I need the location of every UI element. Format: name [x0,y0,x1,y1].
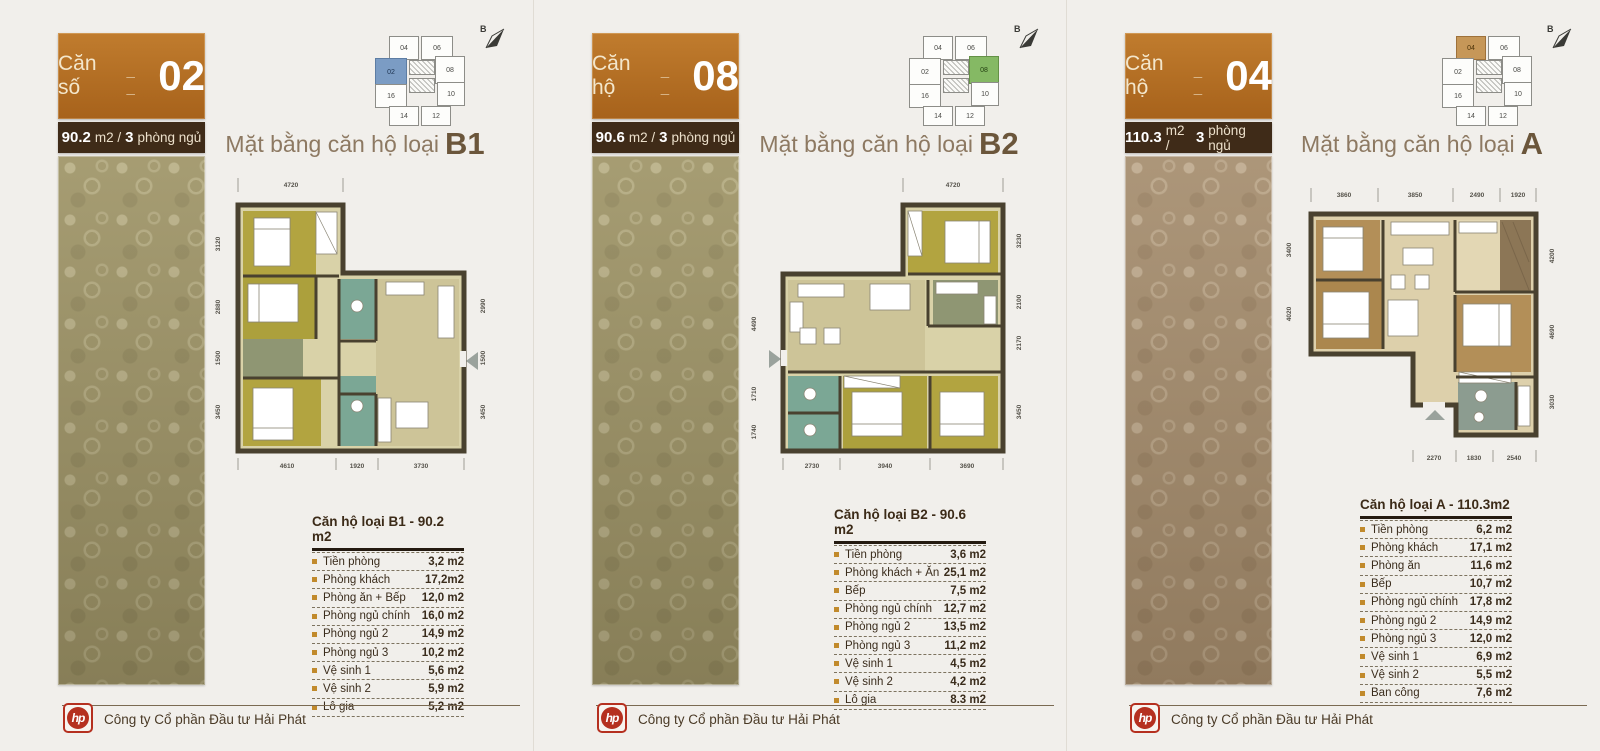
dim-label: 2100 [1016,294,1023,309]
room-area-value: 3,6 m2 [950,549,986,561]
area-bar: 90.2 m2 / 3 phòng ngủ [58,122,205,153]
area-value: 110.3 [1125,129,1162,146]
bedroom-count: 3 [125,129,133,146]
plan-type: A [1521,126,1543,161]
brochure-page: Căn số _ _ 02 90.2 m2 / 3 phòng ngủ 04 0… [0,0,1600,751]
table-row: Phòng khách17,2m2 [312,571,464,589]
dim-label: 3450 [480,404,487,419]
room-area-value: 14,9 m2 [1470,615,1512,627]
table-row: Lô gia8.3 m2 [834,692,986,710]
dim-label: 4720 [284,182,299,189]
table-title: Căn hộ loại B1 - 90.2 m2 [312,514,464,551]
area-unit: m2 / [1166,123,1192,153]
dim-label: 2170 [1016,335,1023,350]
table-row: Tiền phòng3,6 m2 [834,546,986,564]
compass-arrow-icon [484,26,506,50]
table-row: Phòng ngủ chính16,0 m2 [312,608,464,626]
room-area-value: 17,2m2 [425,574,464,586]
unit-number: 04 [1225,55,1272,97]
bullet-square-icon [834,643,839,648]
room-area-value: 6,2 m2 [1476,524,1512,536]
room-name: Vệ sinh 2 [845,676,950,688]
key-unit-16: 16 [1442,84,1474,108]
bullet-square-icon [312,614,317,619]
bedroom-label: phòng ngủ [137,130,201,145]
room-area-value: 12,7 m2 [944,603,986,615]
room-name: Phòng ngủ chính [845,603,944,615]
key-unit-14: 14 [1456,106,1486,126]
company-name: Công ty Cổ phần Đầu tư Hải Phát [638,712,840,727]
room-area-value: 7,6 m2 [1476,687,1512,699]
key-unit-10: 10 [437,82,465,106]
bullet-square-icon [1360,636,1365,641]
dim-label: 3860 [1337,192,1352,199]
room-name: Tiền phòng [845,549,950,561]
key-unit-12: 12 [955,106,985,126]
bedroom-label: phòng ngủ [671,130,735,145]
room-area-value: 3,2 m2 [428,556,464,568]
table-rows: Tiền phòng3,6 m2Phòng khách + Ăn25,1 m2B… [834,545,986,710]
unit-number-header: Căn hộ _ _ 08 [592,33,739,119]
unit-panel-b2: Căn hộ _ _ 08 90.6 m2 / 3 phòng ngủ 04 0… [533,0,1067,751]
dim-label: 1740 [751,424,758,439]
room-name: Vệ sinh 1 [845,658,950,670]
room-area-value: 13,5 m2 [944,621,986,633]
company-logo: hp [1130,703,1160,733]
entry-door-gap [781,350,787,366]
bedroom-count: 3 [659,129,667,146]
room-name: Phòng khách + Ăn [845,567,944,579]
room-name: Bếp [845,585,950,597]
bullet-square-icon [312,632,317,637]
entry-door-gap [1423,402,1445,408]
bullet-square-icon [312,595,317,600]
area-value: 90.6 [596,129,625,146]
room-area-table: Căn hộ loại B1 - 90.2 m2 Tiền phòng3,2 m… [312,514,464,717]
room-area-value: 17,1 m2 [1470,542,1512,554]
room-area-value: 5,9 m2 [428,683,464,695]
room-name: Phòng ngủ chính [323,610,422,622]
bullet-square-icon [1360,545,1365,550]
entry-arrow-icon [769,350,781,368]
unit-blanks: _ _ [1194,63,1219,97]
dim-label: 3030 [1549,394,1556,409]
room-name: Phòng ngủ 3 [323,647,422,659]
key-unit-02: 02 [909,58,941,86]
key-unit-04-highlight: 04 [1456,36,1486,60]
bullet-square-icon [834,552,839,557]
dim-label: 4720 [946,182,961,189]
room-area-value: 4,2 m2 [950,676,986,688]
room-area-value: 11,6 m2 [1470,560,1512,572]
key-unit-04: 04 [389,36,419,60]
key-unit-16: 16 [375,84,407,108]
bullet-square-icon [1360,600,1365,605]
north-compass: B [1549,24,1575,54]
dim-label: 4690 [1549,324,1556,339]
table-row: Phòng ngủ 310,2 m2 [312,644,464,662]
table-row: Bếp10,7 m2 [1360,576,1512,594]
dim-label: 4020 [1286,306,1293,321]
table-row: Phòng khách17,1 m2 [1360,539,1512,557]
key-stair-core [1476,78,1502,93]
key-unit-16: 16 [909,84,941,108]
key-unit-04: 04 [923,36,953,60]
dim-label: 2490 [1470,192,1485,199]
table-row: Tiền phòng3,2 m2 [312,553,464,571]
floor-plan-b2: 4720 4490 1710 1740 3230 2100 2170 3450 … [740,166,1032,478]
room-name: Tiền phòng [1371,524,1476,536]
dim-label: 2730 [805,463,820,470]
bullet-square-icon [834,698,839,703]
unit-number-header: Căn số _ _ 02 [58,33,205,119]
room-name: Phòng khách [1371,542,1470,554]
key-elevator-core [409,60,435,75]
floor-key-plan: 04 06 02 08 16 10 14 12 [357,26,479,124]
plan-title: Mặt bằng căn hộ loạiB1 [205,126,505,162]
table-row: Phòng ăn11,6 m2 [1360,557,1512,575]
table-row: Phòng ngủ 311,2 m2 [834,637,986,655]
room-area-value: 16,0 m2 [422,610,464,622]
dim-label: 1830 [1467,455,1482,462]
dim-label: 1710 [751,386,758,401]
table-rows: Tiền phòng6,2 m2Phòng khách17,1 m2Phòng … [1360,520,1512,703]
plan-title-prefix: Mặt bằng căn hộ loại [225,131,439,157]
dim-label: 4490 [751,316,758,331]
plan-title: Mặt bằng căn hộ loạiA [1272,126,1572,162]
room-area-value: 10,2 m2 [422,647,464,659]
key-unit-02-highlight: 02 [375,58,407,86]
room-name: Vệ sinh 1 [1371,651,1476,663]
logo-hp-icon: hp [601,707,623,729]
unit-blanks: _ _ [126,63,151,97]
room-area-value: 14,9 m2 [422,628,464,640]
entry-arrow-icon [466,352,478,370]
key-unit-12: 12 [421,106,451,126]
bullet-square-icon [1360,654,1365,659]
key-unit-10: 10 [1504,82,1532,106]
plan-title: Mặt bằng căn hộ loạiB2 [739,126,1039,162]
dim-label: 1920 [350,463,365,470]
room-area-value: 12,0 m2 [1470,633,1512,645]
unit-panel-a: Căn hộ _ _ 04 110.3 m2 / 3 phòng ngủ 04 … [1066,0,1600,751]
table-row: Bếp7,5 m2 [834,582,986,600]
dim-label: 1500 [480,350,487,365]
dim-label: 4200 [1549,248,1556,263]
room-area-value: 12,0 m2 [422,592,464,604]
room-area-value: 17,8 m2 [1470,596,1512,608]
table-row: Vệ sinh 24,2 m2 [834,673,986,691]
unit-label: Căn hộ [1125,52,1187,100]
room-name: Vệ sinh 2 [1371,669,1476,681]
room-area-table: Căn hộ loại B2 - 90.6 m2 Tiền phòng3,6 m… [834,507,986,710]
room-area-table: Căn hộ loại A - 110.3m2 Tiền phòng6,2 m2… [1360,497,1512,703]
dim-label: 4610 [280,463,295,470]
company-name: Công ty Cổ phần Đầu tư Hải Phát [104,712,306,727]
area-unit: m2 / [629,130,655,145]
room-name: Phòng ăn [1371,560,1470,572]
room-name: Phòng ngủ chính [1371,596,1470,608]
room-name: Phòng ăn + Bếp [323,592,422,604]
room-name: Phòng khách [323,574,425,586]
room-area-value: 5,5 m2 [1476,669,1512,681]
dim-label: 2880 [215,299,222,314]
key-elevator-core [1476,60,1502,75]
bullet-square-icon [1360,527,1365,532]
dim-label: 3450 [215,404,222,419]
dim-label: 1920 [1511,192,1526,199]
dim-label: 2990 [480,298,487,313]
unit-label: Căn số [58,52,119,100]
room-name: Phòng ngủ 3 [845,640,944,652]
table-row: Phòng ngủ chính17,8 m2 [1360,594,1512,612]
decorative-pattern-strip [592,156,739,685]
footer-divider [62,705,520,706]
bullet-square-icon [834,625,839,630]
table-row: Lô gia5,2 m2 [312,699,464,717]
table-row: Tiền phòng6,2 m2 [1360,521,1512,539]
plan-title-prefix: Mặt bằng căn hộ loại [1301,131,1515,157]
room-area-value: 25,1 m2 [944,567,986,579]
dim-label: 3400 [1286,242,1293,257]
room-name: Lô gia [323,701,428,713]
key-unit-02: 02 [1442,58,1474,86]
room-name: Phòng ngủ 2 [845,621,944,633]
north-compass: B [482,24,508,54]
table-row: Phòng ngủ 312,0 m2 [1360,630,1512,648]
bullet-square-icon [834,679,839,684]
dim-label: 2540 [1507,455,1522,462]
table-row: Phòng ăn + Bếp12,0 m2 [312,589,464,607]
company-logo: hp [597,703,627,733]
company-name: Công ty Cổ phần Đầu tư Hải Phát [1171,712,1373,727]
table-row: Phòng khách + Ăn25,1 m2 [834,564,986,582]
table-row: Vệ sinh 16,9 m2 [1360,648,1512,666]
room-name: Phòng ngủ 2 [1371,615,1470,627]
key-unit-08: 08 [435,56,465,84]
dim-label: 3450 [1016,404,1023,419]
table-row: Phòng ngủ 214,9 m2 [312,626,464,644]
key-stair-core [943,78,969,93]
room-area-value: 10,7 m2 [1470,578,1512,590]
decorative-pattern-strip [58,156,205,685]
table-row: Phòng ngủ 214,9 m2 [1360,612,1512,630]
decorative-pattern-strip [1125,156,1272,685]
table-row: Vệ sinh 15,6 m2 [312,662,464,680]
key-unit-14: 14 [389,106,419,126]
bullet-square-icon [834,570,839,575]
room-name: Vệ sinh 1 [323,665,428,677]
room-area-value: 6,9 m2 [1476,651,1512,663]
bullet-square-icon [1360,582,1365,587]
logo-hp-icon: hp [67,707,89,729]
bullet-square-icon [1360,618,1365,623]
table-row: Ban công7,6 m2 [1360,685,1512,703]
table-rows: Tiền phòng3,2 m2Phòng khách17,2m2Phòng ă… [312,552,464,717]
floor-plan-b1: 4720 3120 2880 1500 3450 2990 1500 3450 … [206,166,498,478]
logo-hp-icon: hp [1134,707,1156,729]
dim-label: 3850 [1408,192,1423,199]
key-unit-14: 14 [923,106,953,126]
key-unit-10: 10 [971,82,999,106]
bedroom-count: 3 [1196,129,1204,146]
room-area-value: 4,5 m2 [950,658,986,670]
bullet-square-icon [312,668,317,673]
entry-arrow-icon [1425,410,1445,420]
floor-key-plan: 04 06 02 08 16 10 14 12 [1424,26,1546,124]
bullet-square-icon [1360,691,1365,696]
room-area-value: 11,2 m2 [944,640,986,652]
bullet-square-icon [834,607,839,612]
table-title: Căn hộ loại B2 - 90.6 m2 [834,507,986,544]
area-unit: m2 / [95,130,121,145]
dim-label: 1500 [215,350,222,365]
area-bar: 110.3 m2 / 3 phòng ngủ [1125,122,1272,153]
room-name: Phòng ngủ 2 [323,628,422,640]
unit-number: 08 [692,55,739,97]
bullet-square-icon [312,559,317,564]
floor-plan-a: 3860 3850 2490 1920 3400 4020 4200 4690 … [1273,172,1565,484]
key-stair-core [409,78,435,93]
key-unit-12: 12 [1488,106,1518,126]
room-name: Phòng ngủ 3 [1371,633,1470,645]
dim-label: 3230 [1016,233,1023,248]
dim-label: 3940 [878,463,893,470]
bullet-square-icon [834,588,839,593]
key-unit-08-highlight: 08 [969,56,999,84]
bullet-square-icon [1360,673,1365,678]
bullet-square-icon [312,577,317,582]
room-name: Tiền phòng [323,556,428,568]
dim-label: 2270 [1427,455,1442,462]
area-value: 90.2 [62,129,91,146]
room-name: Ban công [1371,687,1476,699]
plan-type: B1 [445,126,485,161]
bullet-square-icon [1360,563,1365,568]
compass-arrow-icon [1551,26,1573,50]
room-area-value: 5,2 m2 [428,701,464,713]
unit-blanks: _ _ [661,63,686,97]
area-bar: 90.6 m2 / 3 phòng ngủ [592,122,739,153]
company-logo: hp [63,703,93,733]
dim-label: 3120 [215,236,222,251]
unit-panel-b1: Căn số _ _ 02 90.2 m2 / 3 phòng ngủ 04 0… [0,0,533,751]
plan-type: B2 [979,126,1019,161]
bullet-square-icon [312,650,317,655]
floor-key-plan: 04 06 02 08 16 10 14 12 [891,26,1013,124]
room-name: Bếp [1371,578,1470,590]
room-area-value: 5,6 m2 [428,665,464,677]
dim-label: 3690 [960,463,975,470]
unit-number: 02 [158,55,205,97]
table-row: Phòng ngủ 213,5 m2 [834,619,986,637]
table-title: Căn hộ loại A - 110.3m2 [1360,497,1512,519]
entry-door-gap [460,351,466,367]
table-row: Vệ sinh 25,9 m2 [312,680,464,698]
dim-label: 3730 [414,463,429,470]
north-compass: B [1016,24,1042,54]
key-unit-08: 08 [1502,56,1532,84]
unit-label: Căn hộ [592,52,654,100]
bullet-square-icon [834,661,839,666]
table-row: Vệ sinh 14,5 m2 [834,655,986,673]
table-row: Vệ sinh 25,5 m2 [1360,667,1512,685]
key-elevator-core [943,60,969,75]
unit-number-header: Căn hộ _ _ 04 [1125,33,1272,119]
plan-title-prefix: Mặt bằng căn hộ loại [759,131,973,157]
room-area-value: 7,5 m2 [950,585,986,597]
footer-divider [596,705,1054,706]
footer-divider [1129,705,1587,706]
room-name: Vệ sinh 2 [323,683,428,695]
table-row: Phòng ngủ chính12,7 m2 [834,601,986,619]
bullet-square-icon [312,686,317,691]
compass-arrow-icon [1018,26,1040,50]
bedroom-label: phòng ngủ [1208,123,1272,153]
